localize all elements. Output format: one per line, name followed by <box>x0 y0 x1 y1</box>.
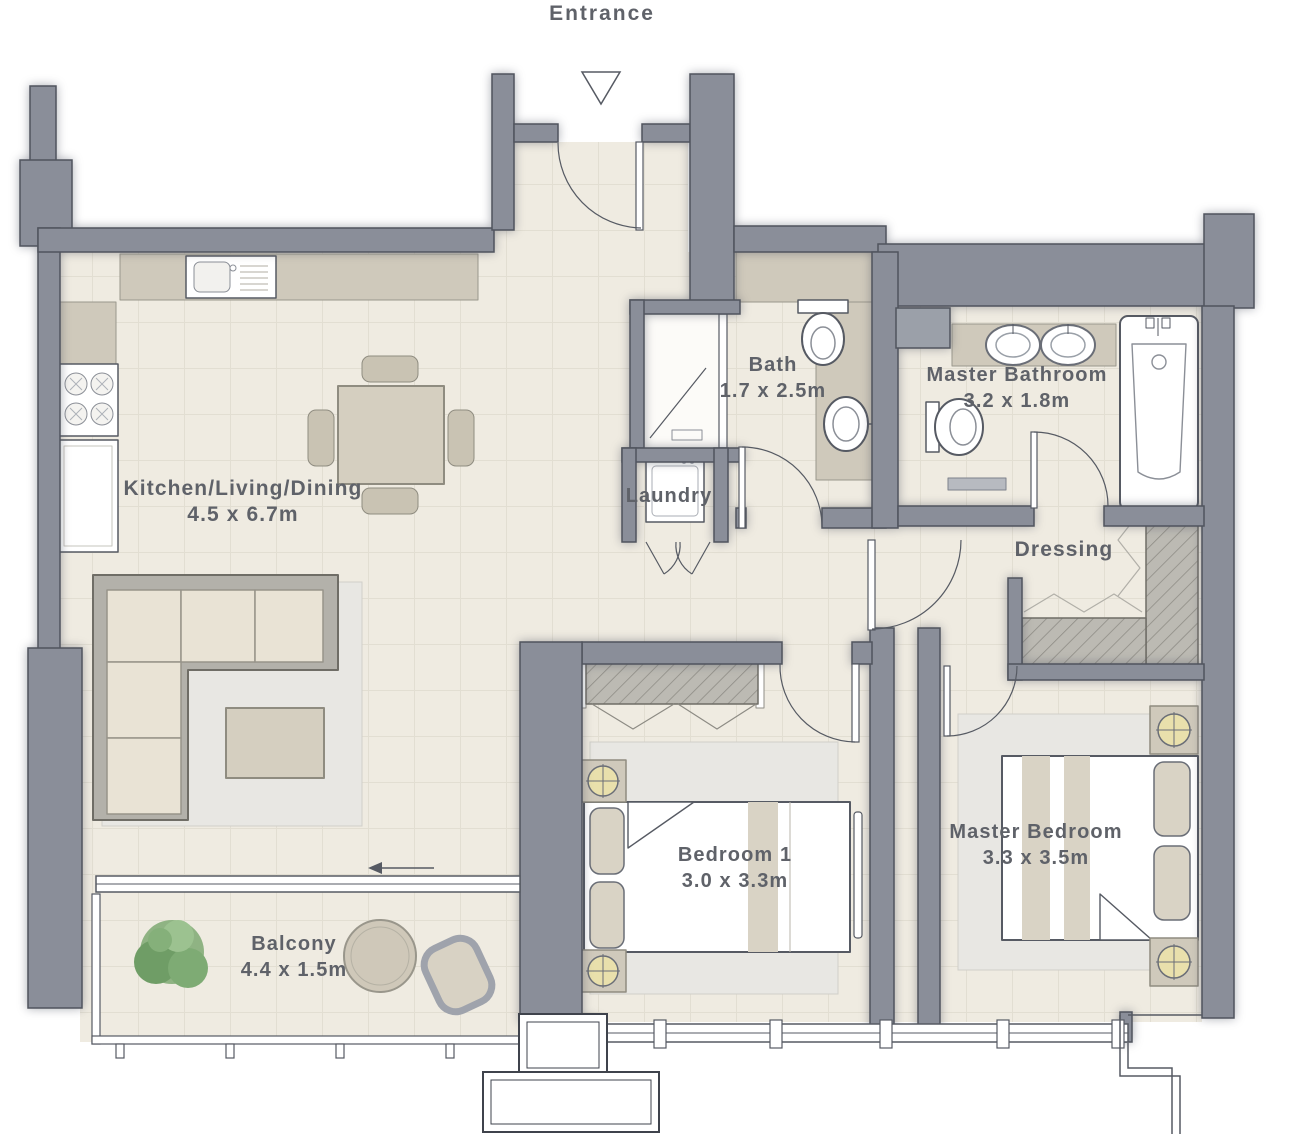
room-label-master-bathroom: Master Bathroom 3.2 x 1.8m <box>927 362 1108 414</box>
room-label-balcony: Balcony 4.4 x 1.5m <box>241 931 348 983</box>
kitchen-sink <box>186 256 276 298</box>
bedroom-windows <box>588 1020 1128 1048</box>
coffee-table <box>226 708 324 778</box>
room-name: Master Bathroom <box>927 364 1108 386</box>
room-label-bath: Bath 1.7 x 2.5m <box>720 352 827 404</box>
room-dimensions: 3.2 x 1.8m <box>927 388 1108 414</box>
shower <box>644 314 727 448</box>
balcony-table <box>344 920 416 992</box>
room-name: Bath <box>749 354 798 376</box>
kitchen-counter-left <box>60 302 116 364</box>
entrance-arrow-icon <box>582 72 620 104</box>
room-label-kitchen-living-dining: Kitchen/Living/Dining 4.5 x 6.7m <box>124 476 363 528</box>
bedroom1-mirror <box>854 812 862 938</box>
room-label-laundry: Laundry <box>626 483 713 509</box>
room-label-master-bedroom: Master Bedroom 3.3 x 3.5m <box>949 819 1122 871</box>
room-dimensions: 4.4 x 1.5m <box>241 957 348 983</box>
room-name: Laundry <box>626 485 713 507</box>
room-dimensions: 1.7 x 2.5m <box>720 378 827 404</box>
room-label-bedroom-1: Bedroom 1 3.0 x 3.3m <box>678 842 792 894</box>
entrance-label: Entrance <box>549 2 655 26</box>
room-name: Master Bedroom <box>949 821 1122 843</box>
fridge <box>58 440 118 552</box>
kitchen-counter <box>120 254 478 300</box>
bath-counter-top <box>736 252 886 302</box>
room-dimensions: 4.5 x 6.7m <box>124 502 363 528</box>
room-dimensions: 3.0 x 3.3m <box>678 868 792 894</box>
room-name: Balcony <box>251 933 337 955</box>
floor-plan-drawing <box>0 0 1303 1134</box>
master-bath-niche <box>896 308 950 348</box>
stove <box>58 364 118 436</box>
room-name: Bedroom 1 <box>678 844 792 866</box>
towel-shelf <box>948 478 1006 490</box>
room-label-dressing: Dressing <box>1015 537 1114 563</box>
floor-plan: Entrance Kitchen/Living/Dining 4.5 x 6.7… <box>0 0 1303 1134</box>
bathtub <box>1120 316 1198 510</box>
room-name: Dressing <box>1015 538 1114 561</box>
room-name: Kitchen/Living/Dining <box>124 477 363 500</box>
room-dimensions: 3.3 x 3.5m <box>949 845 1122 871</box>
